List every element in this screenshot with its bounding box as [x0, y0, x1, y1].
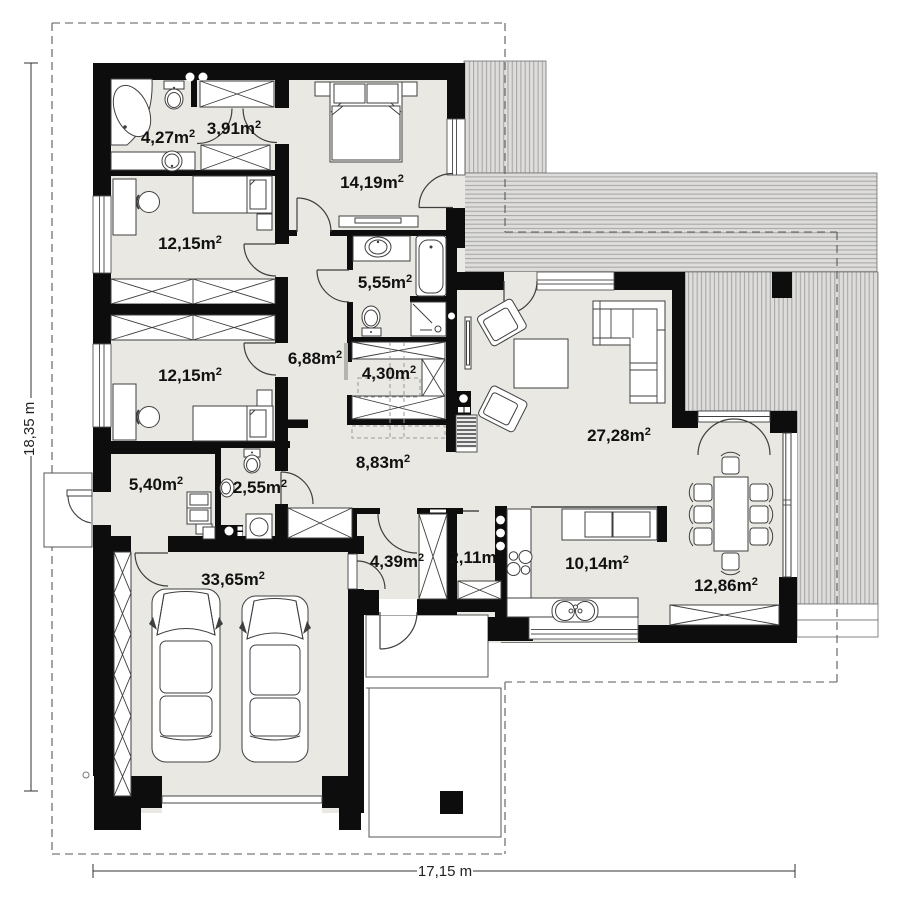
svg-text:12,15m2: 12,15m2	[158, 366, 222, 385]
svg-text:27,28m2: 27,28m2	[587, 426, 651, 445]
svg-text:8,83m2: 8,83m2	[356, 453, 410, 472]
svg-text:18,35 m: 18,35 m	[21, 402, 38, 456]
svg-text:3,91m2: 3,91m2	[207, 119, 261, 138]
svg-text:17,15 m: 17,15 m	[418, 863, 472, 880]
svg-text:33,65m2: 33,65m2	[201, 570, 265, 589]
svg-text:2,55m2: 2,55m2	[233, 478, 287, 497]
svg-text:5,55m2: 5,55m2	[358, 273, 412, 292]
svg-text:14,19m2: 14,19m2	[340, 173, 404, 192]
svg-text:6,88m2: 6,88m2	[288, 349, 342, 368]
svg-text:4,39m2: 4,39m2	[370, 552, 424, 571]
svg-text:12,86m2: 12,86m2	[694, 576, 758, 595]
svg-text:4,30m2: 4,30m2	[362, 364, 416, 383]
svg-text:5,40m2: 5,40m2	[129, 475, 183, 494]
svg-text:10,14m2: 10,14m2	[565, 554, 629, 573]
svg-text:2,11m2: 2,11m2	[449, 548, 502, 567]
svg-text:4,27m2: 4,27m2	[141, 128, 195, 147]
svg-text:12,15m2: 12,15m2	[158, 234, 222, 253]
